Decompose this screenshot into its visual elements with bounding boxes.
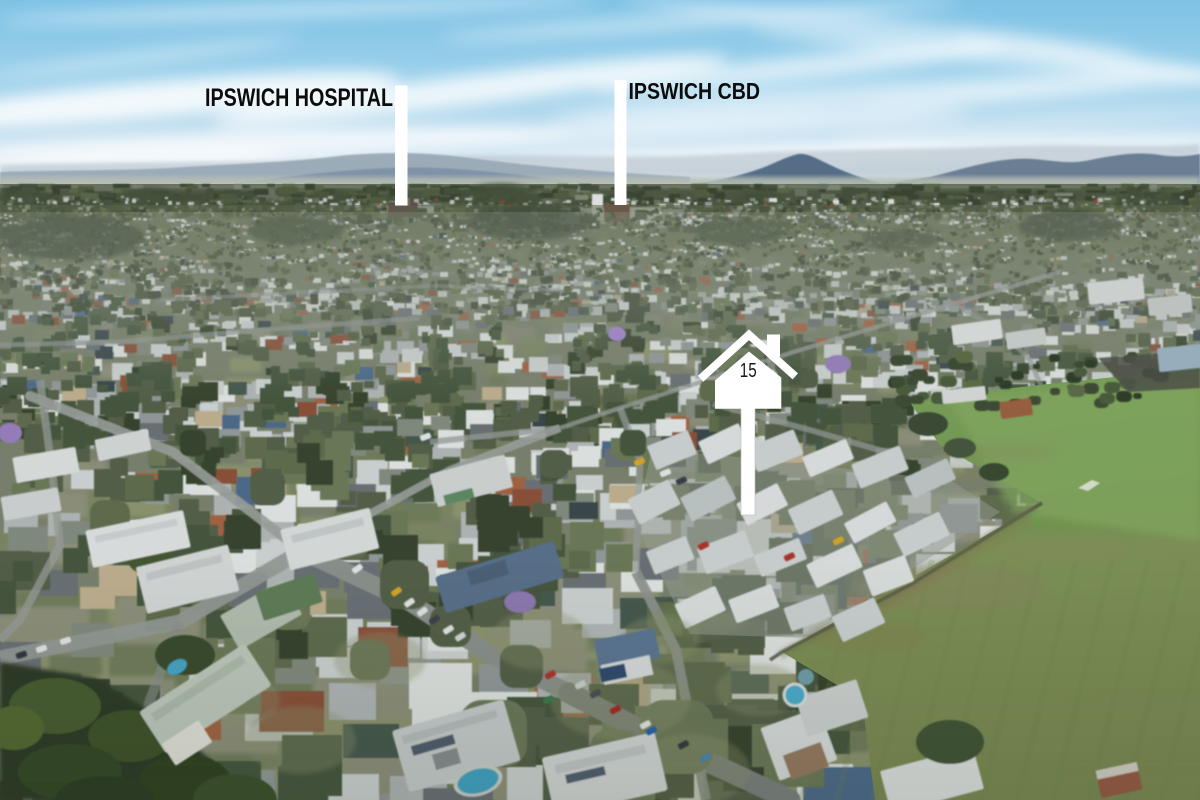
svg-text:IPSWICH CBD: IPSWICH CBD xyxy=(629,78,761,104)
svg-text:15: 15 xyxy=(740,360,757,382)
svg-text:IPSWICH HOSPITAL: IPSWICH HOSPITAL xyxy=(205,84,393,112)
